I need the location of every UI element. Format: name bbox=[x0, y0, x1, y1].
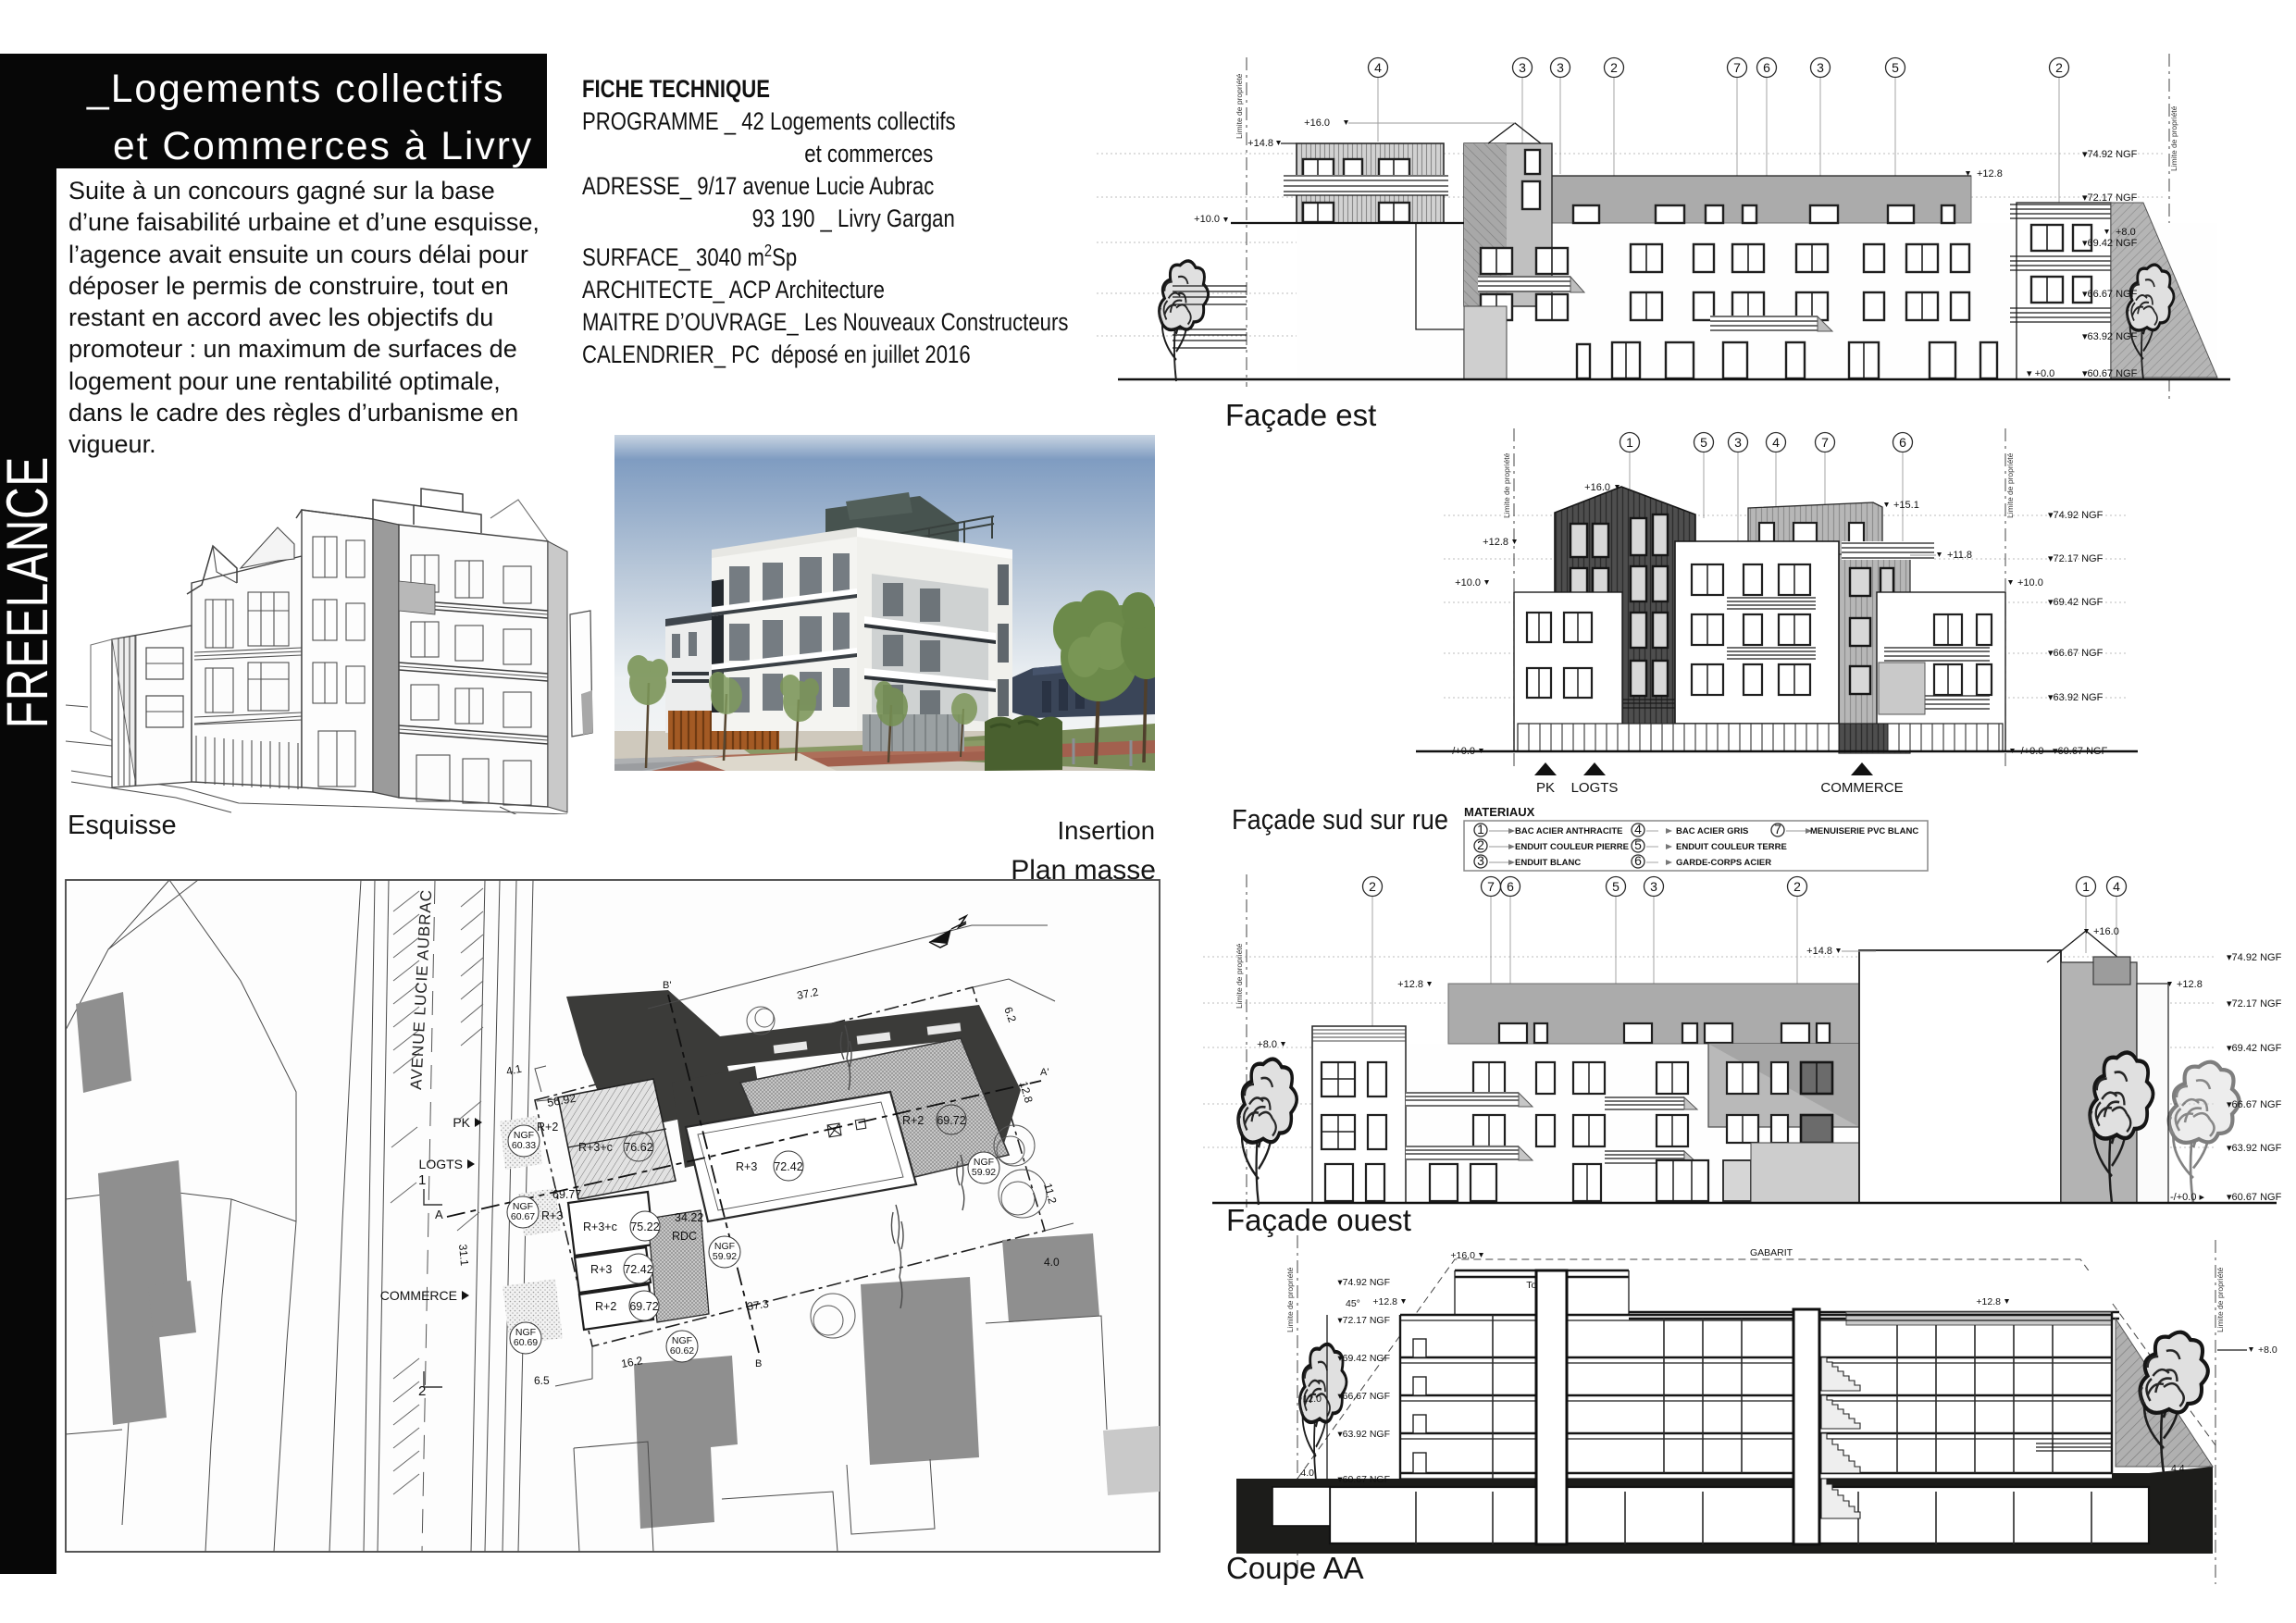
svg-text:▾74.92 NGF: ▾74.92 NGF bbox=[2227, 952, 2282, 963]
svg-text:▾72.17 NGF: ▾72.17 NGF bbox=[1337, 1315, 1390, 1326]
svg-text:+8.0: +8.0 bbox=[1257, 1039, 1277, 1050]
svg-text:7: 7 bbox=[1774, 822, 1781, 836]
svg-text:Limite de propriété: Limite de propriété bbox=[1502, 452, 1511, 518]
svg-text:Limite de propriété: Limite de propriété bbox=[1285, 1267, 1295, 1332]
svg-text:GABARIT: GABARIT bbox=[1750, 1247, 1793, 1258]
svg-text:PK: PK bbox=[1536, 780, 1555, 796]
svg-text:60.69: 60.69 bbox=[514, 1337, 538, 1348]
svg-text:+12.8: +12.8 bbox=[1483, 537, 1508, 548]
svg-text:4: 4 bbox=[2113, 879, 2120, 894]
svg-text:▾66.67 NGF: ▾66.67 NGF bbox=[1337, 1391, 1390, 1402]
svg-text:+14.8: +14.8 bbox=[1806, 946, 1832, 957]
svg-text:R+3: R+3 bbox=[590, 1263, 612, 1276]
svg-text:+12.8: +12.8 bbox=[1397, 979, 1423, 990]
svg-text:2: 2 bbox=[1369, 879, 1376, 894]
svg-text:R+2: R+2 bbox=[902, 1114, 924, 1127]
svg-text:5: 5 bbox=[1634, 837, 1642, 852]
svg-text:ENDUIT COULEUR TERRE: ENDUIT COULEUR TERRE bbox=[1676, 842, 1787, 852]
svg-text:▾63.92 NGF: ▾63.92 NGF bbox=[2227, 1143, 2282, 1154]
svg-text:+10.0: +10.0 bbox=[1455, 577, 1481, 588]
svg-text:▾69.42 NGF: ▾69.42 NGF bbox=[2082, 238, 2138, 249]
svg-text:LOGTS: LOGTS bbox=[419, 1157, 463, 1171]
svg-text:▾74.92 NGF: ▾74.92 NGF bbox=[1337, 1277, 1390, 1288]
svg-text:Limite de propriété: Limite de propriété bbox=[1235, 943, 1244, 1009]
svg-text:COMMERCE: COMMERCE bbox=[1820, 780, 1903, 796]
svg-text:Limite de propriété: Limite de propriété bbox=[1235, 73, 1244, 139]
svg-text:3: 3 bbox=[1519, 60, 1526, 75]
svg-text:-/+0.0 ▸: -/+0.0 ▸ bbox=[2170, 1192, 2204, 1203]
svg-text:▾74.92 NGF: ▾74.92 NGF bbox=[2082, 149, 2138, 160]
svg-text:2: 2 bbox=[418, 1383, 426, 1399]
svg-text:6: 6 bbox=[1899, 435, 1906, 450]
svg-text:3: 3 bbox=[1477, 853, 1484, 868]
svg-text:+10.0: +10.0 bbox=[1194, 214, 1220, 225]
svg-text:RDC: RDC bbox=[672, 1230, 697, 1243]
svg-text:PK: PK bbox=[453, 1115, 470, 1130]
svg-text:5: 5 bbox=[1892, 60, 1899, 75]
svg-text:A': A' bbox=[1040, 1067, 1049, 1078]
svg-text:60.33: 60.33 bbox=[512, 1140, 536, 1151]
svg-text:▾63.92 NGF: ▾63.92 NGF bbox=[1337, 1429, 1390, 1440]
svg-text:4: 4 bbox=[1772, 435, 1780, 450]
svg-text:+14.8: +14.8 bbox=[1247, 138, 1273, 149]
svg-text:ENDUIT BLANC: ENDUIT BLANC bbox=[1515, 858, 1581, 868]
svg-text:31.1: 31.1 bbox=[456, 1244, 471, 1267]
svg-text:59.92: 59.92 bbox=[713, 1251, 737, 1262]
svg-text:▾60.67 NGF: ▾60.67 NGF bbox=[2227, 1192, 2282, 1203]
svg-text:Coupe AA: Coupe AA bbox=[1226, 1551, 1364, 1585]
svg-text:72.42: 72.42 bbox=[774, 1160, 802, 1173]
svg-text:3: 3 bbox=[1557, 60, 1564, 75]
svg-text:3: 3 bbox=[1817, 60, 1824, 75]
svg-text:2: 2 bbox=[2055, 60, 2063, 75]
svg-text:▾63.92 NGF: ▾63.92 NGF bbox=[2082, 331, 2138, 342]
svg-text:B: B bbox=[755, 1358, 762, 1369]
svg-text:69.72: 69.72 bbox=[629, 1300, 658, 1313]
svg-text:60.67: 60.67 bbox=[511, 1211, 535, 1222]
svg-text:5: 5 bbox=[1700, 435, 1707, 450]
svg-text:1: 1 bbox=[1626, 435, 1633, 450]
svg-text:LOGTS: LOGTS bbox=[1571, 780, 1619, 796]
svg-text:▾72.17 NGF: ▾72.17 NGF bbox=[2082, 192, 2138, 204]
svg-text:GARDE-CORPS ACIER: GARDE-CORPS ACIER bbox=[1676, 858, 1771, 868]
svg-text:▾72.17 NGF: ▾72.17 NGF bbox=[2048, 553, 2104, 564]
svg-text:R+2: R+2 bbox=[537, 1121, 558, 1134]
svg-text:+8.0: +8.0 bbox=[2258, 1344, 2277, 1356]
svg-text:+12.8: +12.8 bbox=[1977, 168, 2003, 180]
svg-text:5: 5 bbox=[1612, 879, 1620, 894]
svg-text:+16.0: +16.0 bbox=[2093, 926, 2119, 937]
svg-text:R+3: R+3 bbox=[541, 1209, 563, 1222]
svg-text:▾ +0.0: ▾ +0.0 bbox=[2027, 368, 2054, 379]
svg-text:2: 2 bbox=[1793, 879, 1801, 894]
svg-text:1: 1 bbox=[418, 1172, 426, 1188]
svg-text:7: 7 bbox=[1733, 60, 1741, 75]
svg-text:4.0: 4.0 bbox=[1300, 1468, 1314, 1479]
svg-text:+12.8: +12.8 bbox=[1372, 1296, 1397, 1307]
svg-text:76.62: 76.62 bbox=[624, 1141, 652, 1154]
svg-text:2: 2 bbox=[1610, 60, 1618, 75]
svg-text:R+3+c: R+3+c bbox=[583, 1220, 617, 1233]
svg-text:R+2: R+2 bbox=[595, 1300, 616, 1313]
svg-text:69.77: 69.77 bbox=[552, 1188, 581, 1201]
svg-text:▾60.67 NGF: ▾60.67 NGF bbox=[2082, 368, 2138, 379]
svg-text:▾69.42 NGF: ▾69.42 NGF bbox=[1337, 1353, 1390, 1364]
svg-text:+10.0: +10.0 bbox=[2017, 577, 2043, 588]
svg-text:Façade sud sur rue: Façade sud sur rue bbox=[1232, 803, 1448, 836]
svg-text:▾74.92 NGF: ▾74.92 NGF bbox=[2048, 510, 2104, 521]
svg-text:72.42: 72.42 bbox=[624, 1263, 652, 1276]
svg-text:+15.1: +15.1 bbox=[1893, 500, 1919, 511]
svg-text:ENDUIT COULEUR PIERRE: ENDUIT COULEUR PIERRE bbox=[1515, 842, 1629, 852]
svg-text:-/+0.0: -/+0.0 bbox=[1449, 746, 1475, 757]
svg-text:+12.8: +12.8 bbox=[2177, 979, 2203, 990]
svg-text:+12.8: +12.8 bbox=[1976, 1296, 2001, 1307]
svg-text:Limite de propriété: Limite de propriété bbox=[2005, 452, 2015, 518]
svg-text:▾72.17 NGF: ▾72.17 NGF bbox=[2227, 998, 2282, 1010]
svg-text:34.22: 34.22 bbox=[675, 1211, 703, 1224]
svg-text:▾66.67 NGF: ▾66.67 NGF bbox=[2082, 289, 2138, 300]
svg-text:75.22: 75.22 bbox=[630, 1220, 659, 1233]
svg-text:7: 7 bbox=[1821, 435, 1829, 450]
svg-text:+16.0: +16.0 bbox=[1304, 118, 1330, 129]
svg-text:BAC ACIER GRIS: BAC ACIER GRIS bbox=[1676, 826, 1748, 836]
svg-text:4.0: 4.0 bbox=[1044, 1256, 1060, 1269]
svg-text:▾60.67 NGF: ▾60.67 NGF bbox=[2053, 746, 2108, 757]
svg-text:B': B' bbox=[663, 980, 671, 991]
svg-text:MENUISERIE PVC BLANC: MENUISERIE PVC BLANC bbox=[1810, 826, 1918, 836]
svg-text:▾66.67 NGF: ▾66.67 NGF bbox=[2048, 648, 2104, 659]
svg-text:Limite de propriété: Limite de propriété bbox=[2169, 105, 2178, 171]
svg-text:45°: 45° bbox=[1346, 1298, 1360, 1309]
svg-text:+11.8: +11.8 bbox=[1947, 550, 1972, 561]
svg-text:COMMERCE: COMMERCE bbox=[380, 1288, 457, 1303]
svg-text:▾69.42 NGF: ▾69.42 NGF bbox=[2048, 597, 2104, 608]
svg-text:60.62: 60.62 bbox=[670, 1345, 694, 1357]
svg-text:4: 4 bbox=[1634, 822, 1642, 836]
svg-text:1: 1 bbox=[2082, 879, 2090, 894]
svg-text:R+3: R+3 bbox=[736, 1160, 757, 1173]
svg-text:6.5: 6.5 bbox=[534, 1374, 550, 1387]
svg-text:6: 6 bbox=[1507, 879, 1514, 894]
svg-text:4: 4 bbox=[1374, 60, 1382, 75]
svg-text:3: 3 bbox=[1734, 435, 1742, 450]
svg-text:-/+0.0: -/+0.0 bbox=[2017, 746, 2043, 757]
svg-text:Limite de propriété: Limite de propriété bbox=[2215, 1267, 2225, 1332]
svg-text:+16.0: +16.0 bbox=[1450, 1250, 1475, 1261]
svg-text:▾63.92 NGF: ▾63.92 NGF bbox=[2048, 692, 2104, 703]
svg-text:+16.0: +16.0 bbox=[1584, 482, 1610, 493]
svg-text:59.92: 59.92 bbox=[972, 1167, 996, 1178]
svg-text:7: 7 bbox=[1487, 879, 1495, 894]
svg-text:MATERIAUX: MATERIAUX bbox=[1464, 805, 1535, 819]
svg-text:69.72: 69.72 bbox=[937, 1114, 965, 1127]
svg-text:▾69.42 NGF: ▾69.42 NGF bbox=[2227, 1043, 2282, 1054]
svg-text:4.4: 4.4 bbox=[2171, 1463, 2185, 1474]
svg-text:12.0: 12.0 bbox=[1303, 1394, 1322, 1405]
svg-text:+8.0: +8.0 bbox=[2116, 227, 2136, 238]
svg-text:2: 2 bbox=[1477, 837, 1484, 852]
svg-text:6: 6 bbox=[1763, 60, 1770, 75]
svg-text:3: 3 bbox=[1650, 879, 1657, 894]
svg-text:BAC ACIER ANTHRACITE: BAC ACIER ANTHRACITE bbox=[1515, 826, 1622, 836]
svg-text:R+3+c: R+3+c bbox=[578, 1141, 613, 1154]
svg-text:1: 1 bbox=[1477, 822, 1484, 836]
svg-text:6: 6 bbox=[1634, 853, 1642, 868]
svg-text:A: A bbox=[435, 1208, 443, 1221]
svg-text:▾66.67 NGF: ▾66.67 NGF bbox=[2227, 1099, 2282, 1110]
svg-text:▾60.67 NGF: ▾60.67 NGF bbox=[1337, 1474, 1390, 1485]
